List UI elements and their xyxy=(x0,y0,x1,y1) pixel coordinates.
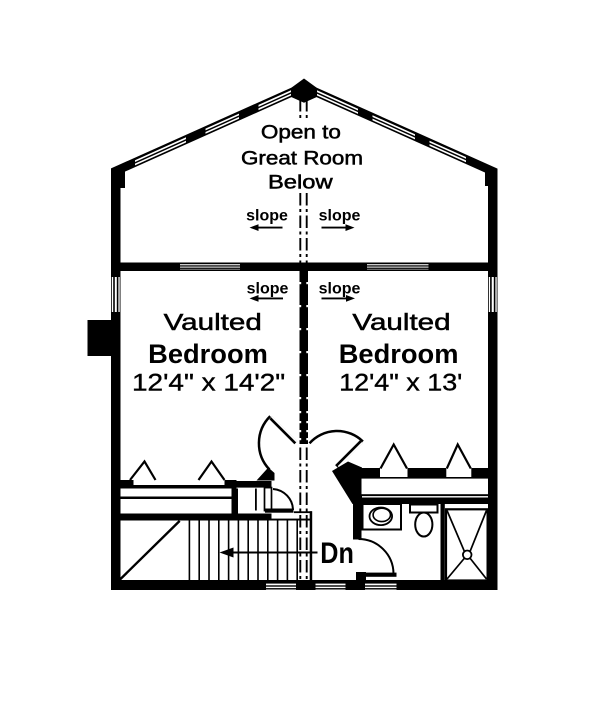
svg-text:Dn: Dn xyxy=(320,536,354,570)
svg-text:Below: Below xyxy=(268,172,333,193)
svg-text:Open to: Open to xyxy=(261,122,341,143)
svg-text:Vaulted: Vaulted xyxy=(352,309,450,335)
svg-text:Vaulted: Vaulted xyxy=(164,309,262,335)
svg-text:slope: slope xyxy=(319,208,361,225)
svg-text:slope: slope xyxy=(246,208,288,225)
svg-text:Bedroom: Bedroom xyxy=(148,339,268,369)
svg-text:slope: slope xyxy=(319,281,361,298)
svg-text:12'4" x 14'2": 12'4" x 14'2" xyxy=(132,368,285,396)
svg-text:Great Room: Great Room xyxy=(241,148,363,169)
svg-text:Bedroom: Bedroom xyxy=(339,339,459,369)
svg-text:slope: slope xyxy=(247,281,289,298)
svg-text:12'4" x 13': 12'4" x 13' xyxy=(339,370,462,397)
